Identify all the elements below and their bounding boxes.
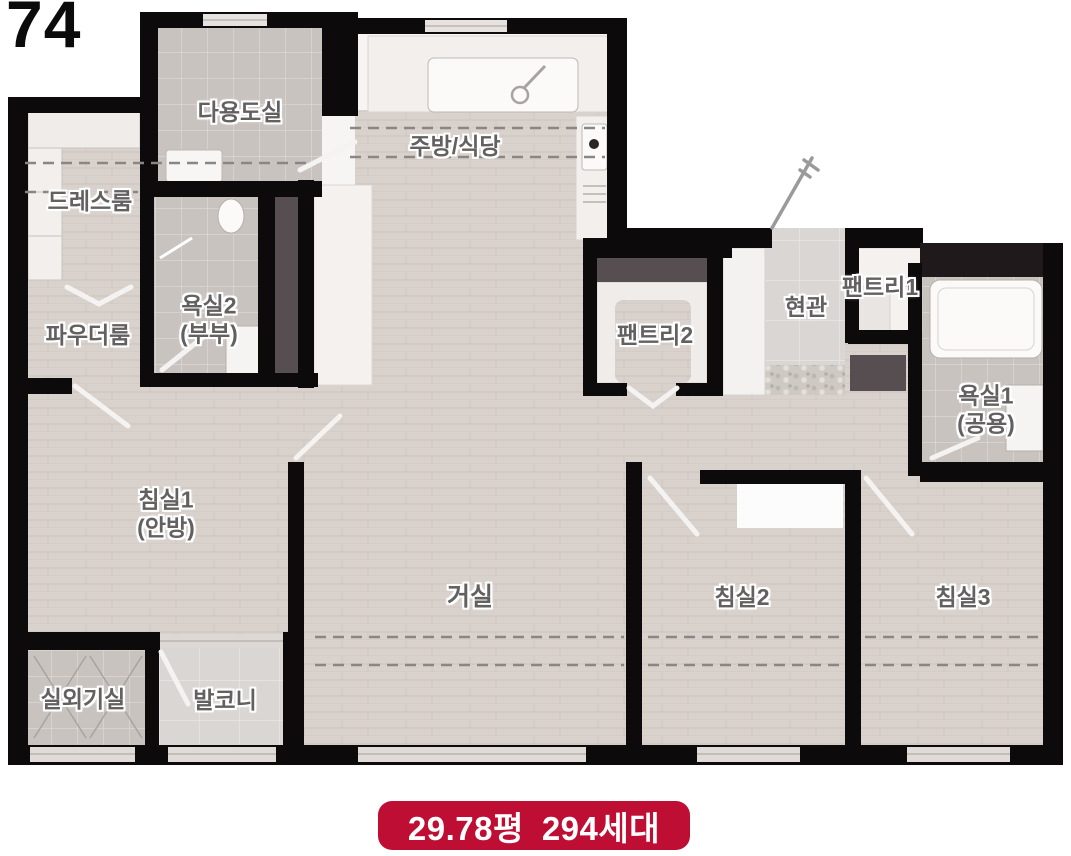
room-label-ac-room: 실외기실 <box>41 686 126 714</box>
room-label-balcony: 발코니 <box>193 687 256 715</box>
wardrobe-hall <box>275 185 300 385</box>
room-label-pantry1: 팬트리1 <box>842 274 918 302</box>
pantry2-dark-strip <box>585 258 718 282</box>
badge-households: 294세대 <box>542 802 660 850</box>
entrance-closet <box>723 248 765 395</box>
window-balcony <box>168 747 276 762</box>
window-kitchen-top <box>425 20 507 32</box>
room-label-bedroom2: 침실2 <box>714 584 769 612</box>
window-bedroom2 <box>697 747 800 762</box>
window-utility-top <box>203 14 267 26</box>
bedroom2-closet <box>737 480 843 528</box>
room-label-bedroom1: 침실1 (안방) <box>137 486 195 541</box>
room-label-powder: 파우더룸 <box>46 322 131 350</box>
area-households-badge: 29.78평 294세대 <box>378 801 690 850</box>
room-label-living: 거실 <box>447 582 493 612</box>
floor-entrance-stone <box>765 365 845 395</box>
bath1-tub <box>930 280 1042 358</box>
room-label-entrance: 현관 <box>785 294 827 322</box>
room-label-bedroom3: 침실3 <box>935 584 990 612</box>
window-living <box>358 747 586 762</box>
bath2-toilet <box>218 199 244 233</box>
room-label-bath1: 욕실1 (공용) <box>957 382 1015 437</box>
hall-closet <box>314 185 372 385</box>
window-ac-room <box>30 747 135 762</box>
room-label-pantry2: 팬트리2 <box>617 322 693 350</box>
entry-arrow-icon <box>772 158 818 228</box>
room-label-bath2: 욕실2 (부부) <box>180 292 238 347</box>
room-label-dressroom: 드레스룸 <box>48 188 133 216</box>
floor-plan-drawing <box>0 0 1071 856</box>
window-bedroom3 <box>907 747 1010 762</box>
badge-area: 29.78평 <box>408 802 524 850</box>
floor-plan-page: 74 다용도실 주방/식당 드레스룸 욕실2 (부부) 파우더룸 팬트리2 현관… <box>0 0 1071 856</box>
unit-number: 74 <box>6 0 81 62</box>
room-label-utility: 다용도실 <box>198 99 283 127</box>
utility-washer <box>166 150 222 182</box>
kitchen-sink <box>428 58 578 112</box>
window-bedroom1-balcony <box>160 634 283 648</box>
room-label-kitchen: 주방/식당 <box>409 133 500 161</box>
shoe-cabinet <box>850 355 906 391</box>
